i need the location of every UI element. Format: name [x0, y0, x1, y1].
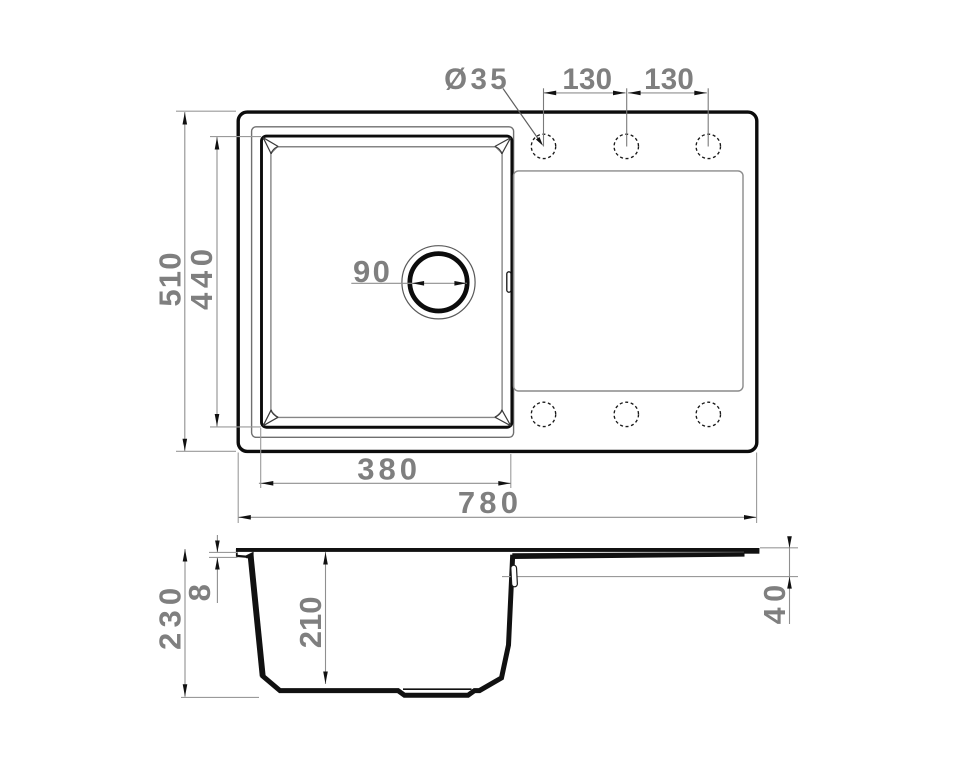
svg-text:130: 130: [644, 63, 694, 96]
svg-text:40: 40: [758, 579, 792, 624]
svg-text:780: 780: [458, 485, 522, 520]
svg-text:Ø35: Ø35: [444, 63, 510, 96]
svg-text:440: 440: [184, 244, 219, 310]
svg-text:130: 130: [562, 63, 612, 96]
svg-text:510: 510: [152, 251, 187, 306]
svg-text:8: 8: [182, 584, 217, 601]
svg-text:380: 380: [357, 452, 421, 487]
svg-text:210: 210: [293, 597, 328, 649]
